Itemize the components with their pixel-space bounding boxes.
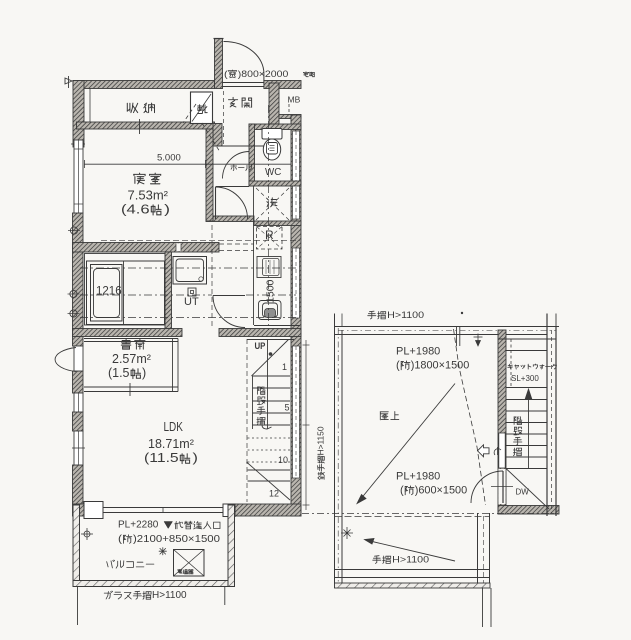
svg-text:R: R xyxy=(265,228,274,242)
svg-text:H>1150: H>1150 xyxy=(316,426,325,455)
svg-text:)600×1500: )600×1500 xyxy=(415,485,468,497)
svg-text:(1.5: (1.5 xyxy=(108,366,130,380)
svg-text:): ) xyxy=(164,202,170,217)
svg-text:(: ( xyxy=(400,485,404,497)
svg-text:1: 1 xyxy=(282,362,287,372)
svg-text:H>1100: H>1100 xyxy=(152,590,187,601)
svg-text:(11.5: (11.5 xyxy=(144,451,179,465)
svg-text:(4.6: (4.6 xyxy=(121,202,150,217)
svg-text:1216: 1216 xyxy=(96,286,122,298)
svg-text:): ) xyxy=(193,451,198,465)
svg-text:18.71m²: 18.71m² xyxy=(148,437,194,451)
svg-text:10: 10 xyxy=(278,455,288,465)
svg-text:2.57m²: 2.57m² xyxy=(112,352,151,366)
svg-text:5.000: 5.000 xyxy=(157,152,181,163)
svg-text:MB: MB xyxy=(288,95,301,105)
svg-text:): ) xyxy=(142,366,146,380)
svg-text:PL+1980: PL+1980 xyxy=(396,471,440,483)
svg-text:UT: UT xyxy=(184,296,199,308)
svg-text:)2100+850×1500: )2100+850×1500 xyxy=(133,533,220,545)
svg-text:LDK: LDK xyxy=(164,420,184,434)
svg-text:SL+300: SL+300 xyxy=(511,374,539,383)
svg-text:H>1100: H>1100 xyxy=(392,554,429,565)
svg-text:WC: WC xyxy=(265,167,281,178)
svg-text:(: ( xyxy=(396,360,400,372)
svg-text:1500: 1500 xyxy=(265,279,277,303)
svg-text:)800×2000: )800×2000 xyxy=(238,69,288,80)
svg-text:5: 5 xyxy=(285,403,290,413)
svg-text:H>1100: H>1100 xyxy=(387,310,424,321)
svg-text:)1800×1500: )1800×1500 xyxy=(411,360,470,372)
svg-text:DW: DW xyxy=(516,488,530,497)
svg-text:PL+1980: PL+1980 xyxy=(396,346,440,358)
svg-text:PL+2280: PL+2280 xyxy=(118,519,161,530)
svg-text:UP: UP xyxy=(255,341,266,352)
svg-text:(: ( xyxy=(118,533,123,545)
svg-text:12: 12 xyxy=(269,489,279,499)
svg-text:7.53m²: 7.53m² xyxy=(128,188,169,203)
